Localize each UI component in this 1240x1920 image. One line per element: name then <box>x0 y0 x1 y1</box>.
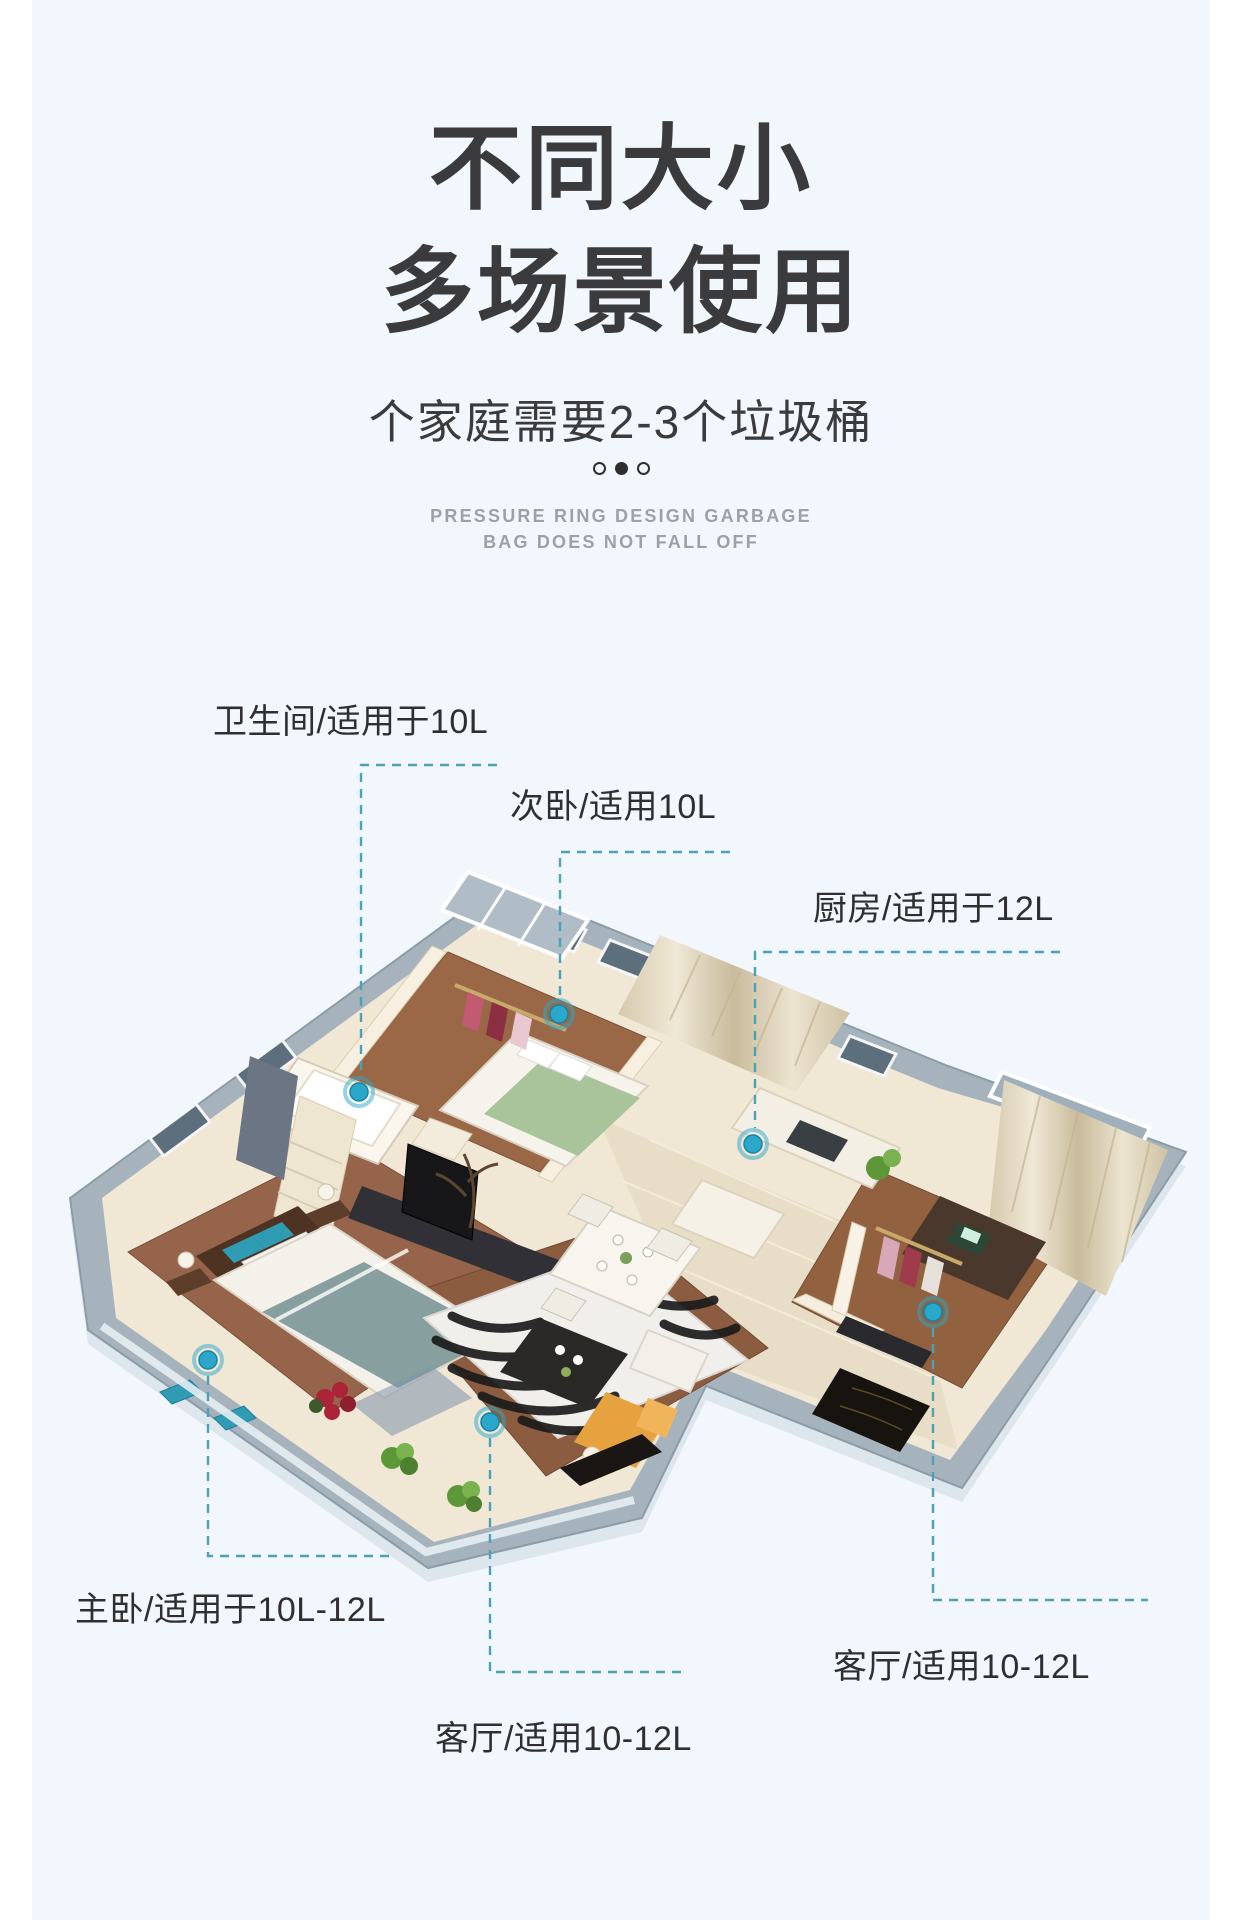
callout-label-master-bedroom: 主卧/适用于10L-12L <box>75 1582 386 1631</box>
floorplan-illustration <box>70 872 1186 1582</box>
callout-label-bathroom: 卫生间/适用于10L <box>213 694 488 743</box>
floorplan-figure <box>0 0 1240 1920</box>
callout-label-living-room-2: 客厅/适用10-12L <box>833 1639 1090 1688</box>
promo-page: 不同大小 多场景使用 个家庭需要2-3个垃圾桶 PRESSURE RING DE… <box>0 0 1240 1920</box>
callout-label-kitchen: 厨房/适用于12L <box>813 881 1054 930</box>
callout-label-second-bedroom: 次卧/适用10L <box>510 779 716 828</box>
callout-label-living-room: 客厅/适用10-12L <box>435 1711 692 1760</box>
